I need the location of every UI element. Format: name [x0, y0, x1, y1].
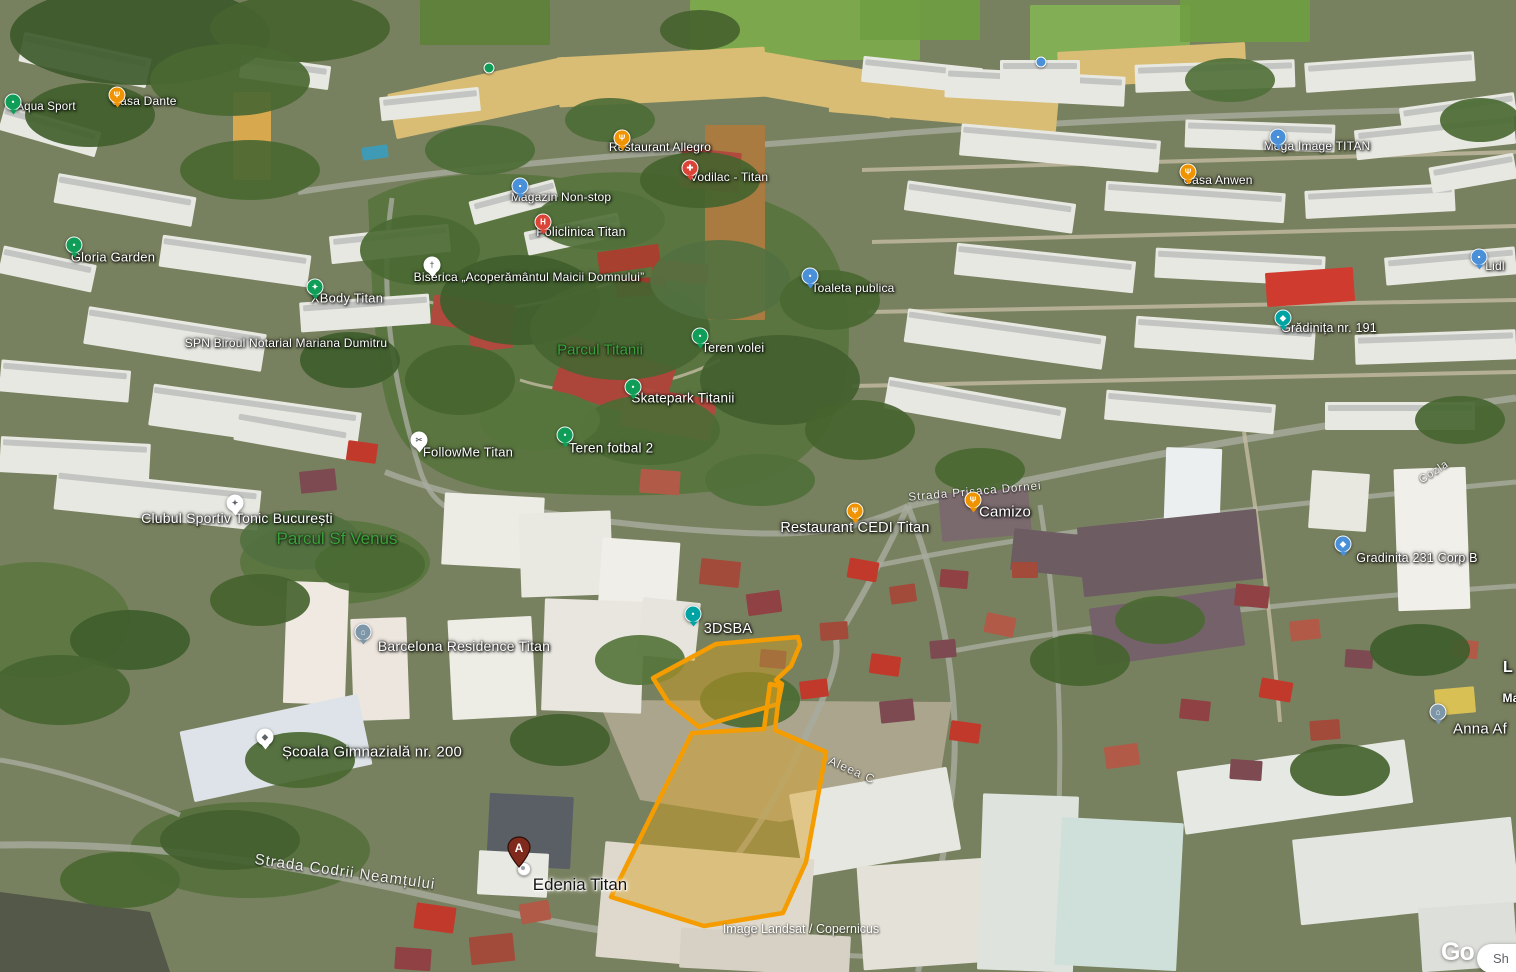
vodilac-titan-pin[interactable]: ✚: [682, 160, 699, 177]
parcul-sf-venus-label[interactable]: Parcul Sf Venus: [277, 529, 398, 549]
marker-letter: A: [515, 841, 524, 855]
map-viewport[interactable]: •Aqua SportΨCasa Dante•Gloria Garden✦XBo…: [0, 0, 1516, 972]
ma-label[interactable]: Ma: [1502, 691, 1516, 705]
coala-gimnazial-nr-200-label[interactable]: Școala Gimnazială nr. 200: [282, 744, 462, 761]
magazin-non-stop-pin[interactable]: ▪: [512, 178, 529, 195]
teren-fotbal-2-pin[interactable]: •: [557, 427, 574, 444]
biserica-acoper-m-ntul-maicii-domnului-label[interactable]: Biserica „Acoperământul Maicii Domnului”: [414, 270, 645, 284]
restaurant-allegro-pin[interactable]: Ψ: [614, 130, 631, 147]
sport-icon: •: [632, 383, 635, 391]
lodging-icon: ⌂: [1436, 708, 1441, 716]
l-label[interactable]: L: [1503, 659, 1513, 677]
skatepark-titanii-label[interactable]: Skatepark Titanii: [631, 391, 734, 406]
sport-icon: •: [564, 431, 567, 439]
camizo-label[interactable]: Camizo: [979, 504, 1031, 521]
casa-anwen-pin[interactable]: Ψ: [1180, 164, 1197, 181]
school-icon: ◆: [1340, 540, 1346, 548]
toaleta-publica-label[interactable]: Toaleta publica: [811, 281, 894, 295]
restaurant-icon: Ψ: [1185, 168, 1191, 176]
share-button-partial[interactable]: Sh: [1477, 944, 1516, 972]
mega-image-titan-pin[interactable]: ▪: [1270, 129, 1287, 146]
xbody-titan-label[interactable]: XBody Titan: [311, 291, 383, 306]
toilet-icon: •: [809, 272, 812, 280]
parcul-titanii-label[interactable]: Parcul Titanii: [557, 342, 643, 359]
spn-biroul-notarial-mariana-dumitru-label[interactable]: SPN Biroul Notarial Mariana Dumitru: [185, 336, 387, 350]
barcelona-residence-titan-pin[interactable]: ⌂: [355, 624, 372, 641]
sport-icon: •: [699, 332, 702, 340]
fitness-icon: ✦: [312, 283, 319, 291]
casa-dante-pin[interactable]: Ψ: [109, 87, 126, 104]
dot-icon: •: [692, 610, 695, 618]
coala-gimnazial-nr-200-pin[interactable]: ◆: [257, 729, 274, 746]
xbody-titan-pin[interactable]: ✦: [307, 279, 324, 296]
3dsba-pin[interactable]: •: [685, 606, 702, 623]
lidl-label[interactable]: Lidl: [1485, 259, 1504, 273]
skatepark-titanii-pin[interactable]: •: [625, 379, 642, 396]
camizo-pin[interactable]: Ψ: [965, 492, 982, 509]
restaurant-cedi-titan-pin[interactable]: Ψ: [847, 503, 864, 520]
biserica-acoper-m-ntul-maicii-domnului-pin[interactable]: †: [424, 257, 441, 274]
gradinita-231-corp-b-pin[interactable]: ◆: [1335, 536, 1352, 553]
followme-titan-pin[interactable]: ✂: [411, 432, 428, 449]
aqua-sport-label[interactable]: Aqua Sport: [16, 101, 76, 113]
gradinita-231-corp-b-label[interactable]: Gradinita 231 Corp B: [1356, 551, 1477, 565]
restaurant-icon: Ψ: [852, 507, 858, 515]
imagery-attribution: Image Landsat / Copernicus: [723, 922, 879, 936]
scissors-icon: ✂: [416, 436, 423, 444]
teren-volei-label[interactable]: Teren volei: [702, 341, 765, 355]
teren-volei-pin[interactable]: •: [692, 328, 709, 345]
school-icon: ◆: [1280, 314, 1286, 322]
3dsba-label[interactable]: 3DSBA: [704, 621, 753, 637]
graduation-icon: ◆: [262, 733, 268, 741]
small-poi-pin-2[interactable]: [1036, 57, 1047, 68]
google-logo-partial: Go: [1441, 938, 1474, 967]
shopping-icon: ▪: [1277, 133, 1280, 141]
toaleta-publica-pin[interactable]: •: [802, 268, 819, 285]
shopping-icon: ▪: [519, 182, 522, 190]
aqua-sport-pin[interactable]: •: [5, 94, 22, 111]
hospital-icon: H: [540, 218, 546, 226]
anna-af-label[interactable]: Anna Af: [1453, 721, 1507, 738]
small-poi-pin-1[interactable]: [484, 63, 495, 74]
anna-af-pin[interactable]: ⌂: [1430, 704, 1447, 721]
tree-icon: •: [12, 98, 15, 106]
vodilac-titan-label[interactable]: Vodilac - Titan: [690, 170, 768, 184]
fitness-icon: ✦: [232, 499, 239, 507]
clubul-sportiv-tonic-bucure-ti-pin[interactable]: ✦: [227, 495, 244, 512]
followme-titan-label[interactable]: FollowMe Titan: [423, 445, 513, 460]
restaurant-icon: Ψ: [970, 496, 976, 504]
lidl-pin[interactable]: ▪: [1471, 249, 1488, 266]
policlinica-titan-pin[interactable]: H: [535, 214, 552, 231]
plus-icon: ✚: [687, 164, 694, 172]
gr-dini-a-nr-191-pin[interactable]: ◆: [1275, 310, 1292, 327]
searched-place-label[interactable]: Edenia Titan: [533, 875, 628, 895]
shopping-icon: ▪: [1478, 253, 1481, 261]
teren-fotbal-2-label[interactable]: Teren fotbal 2: [569, 441, 654, 456]
gloria-garden-label[interactable]: Gloria Garden: [71, 250, 155, 265]
gloria-garden-pin[interactable]: •: [66, 237, 83, 254]
tree-icon: •: [73, 241, 76, 249]
restaurant-icon: Ψ: [114, 91, 120, 99]
gr-dini-a-nr-191-label[interactable]: Grădinița nr. 191: [1281, 321, 1377, 335]
lodging-icon: ⌂: [361, 628, 366, 636]
church-cross-icon: †: [430, 261, 434, 269]
share-button-label: Sh: [1493, 951, 1509, 966]
restaurant-icon: Ψ: [619, 134, 625, 142]
search-marker-a[interactable]: A: [506, 836, 532, 873]
barcelona-residence-titan-label[interactable]: Barcelona Residence Titan: [378, 638, 550, 654]
